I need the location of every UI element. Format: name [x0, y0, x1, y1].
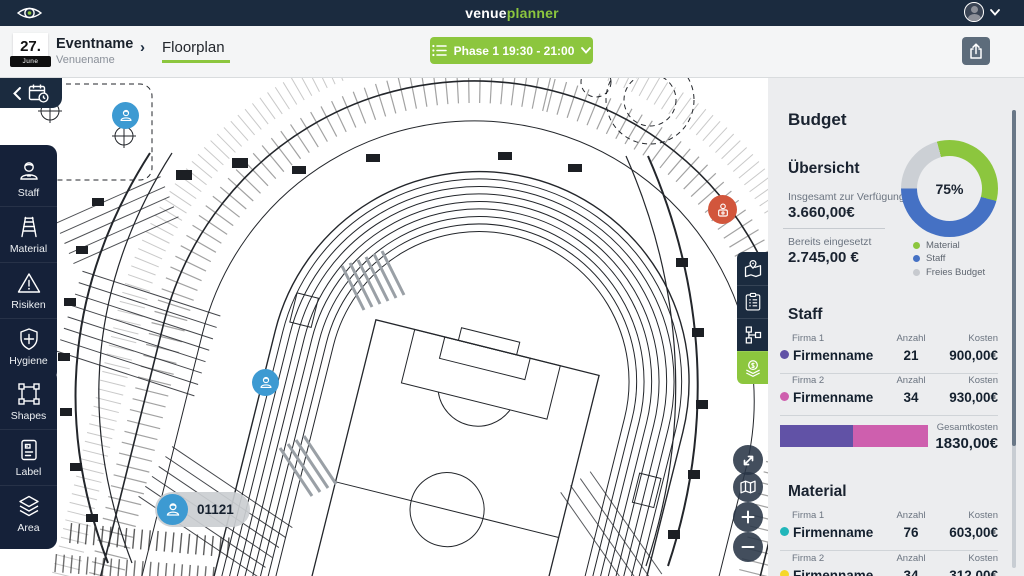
alert-person-marker[interactable] — [708, 195, 737, 224]
staff-tag-avatar — [157, 494, 188, 525]
user-menu[interactable] — [964, 2, 1000, 22]
fullscreen-button[interactable] — [733, 445, 763, 475]
staff-person-icon — [164, 501, 182, 518]
sidebar-item-label: Hygiene — [9, 355, 48, 367]
staff-cost-stacked-bar — [780, 425, 928, 447]
bar-segment — [853, 425, 928, 447]
sidebar-item-label: Material — [10, 243, 47, 255]
legend-item: Staff — [913, 254, 985, 264]
staff-row: Firma 1Firmenname Anzahl21 Kosten900,00€ — [780, 333, 998, 374]
sidebar-item-area[interactable]: Area — [0, 485, 57, 541]
legend-dot — [913, 269, 920, 276]
staff-row: Firma 2Firmenname Anzahl34 Kosten930,00€ — [780, 375, 998, 416]
list-icon — [432, 44, 447, 57]
minus-icon — [741, 540, 755, 554]
total-available-label: Insgesamt zur Verfügung — [788, 191, 905, 203]
calendar-clock-icon — [28, 83, 50, 104]
folded-map-icon — [740, 480, 756, 494]
breadcrumb-chevron-icon: › — [140, 39, 145, 56]
sidebar-item-label: Area — [17, 522, 39, 534]
venue-name: Venuename — [56, 54, 115, 66]
legend-item: Freies Budget — [913, 267, 985, 277]
phase-selector-button[interactable]: Phase 1 19:30 - 21:00 — [430, 37, 593, 64]
used-budget-label: Bereits eingesetzt — [788, 236, 871, 248]
legend-dot — [913, 242, 920, 249]
legend-item: Material — [913, 240, 985, 250]
staff-icon — [16, 159, 42, 183]
staff-person-icon — [258, 375, 274, 390]
total-cost-label: Gesamtkosten — [937, 422, 998, 433]
sidebar-item-label: Label — [16, 466, 42, 478]
zoom-out-button[interactable] — [733, 532, 763, 562]
money-layers-icon — [743, 358, 763, 378]
total-available-value: 3.660,00€ — [788, 204, 855, 221]
divider — [783, 228, 885, 229]
staff-marker[interactable] — [252, 369, 279, 396]
legend-dot — [913, 255, 920, 262]
page-header: 27. June Eventname Venuename › Floorplan… — [0, 26, 1024, 78]
budget-donut-chart: 75% — [901, 140, 998, 237]
sidebar-item-label: Staff — [18, 187, 39, 199]
app-logo-eye-icon[interactable] — [16, 3, 43, 23]
overview-heading: Übersicht — [788, 160, 860, 178]
workflow-button[interactable] — [737, 318, 768, 351]
staff-person-icon — [118, 108, 134, 123]
company-color-dot — [780, 527, 789, 536]
checklist-button[interactable] — [737, 285, 768, 318]
top-navbar: venueplanner — [0, 0, 1024, 26]
material-row: Firma 1Firmenname Anzahl76 Kosten603,00€ — [780, 510, 998, 551]
plus-icon — [741, 510, 755, 524]
sidebar-item-label: Risiken — [11, 299, 45, 311]
company-color-dot — [780, 570, 789, 576]
shield-cross-icon — [16, 327, 42, 351]
sidebar-item-label: Shapes — [11, 410, 47, 422]
event-name: Eventname — [56, 36, 133, 52]
tab-floorplan[interactable]: Floorplan — [162, 39, 225, 56]
map-overview-button[interactable] — [733, 472, 763, 502]
ladder-icon — [16, 215, 42, 239]
material-row: Firma 2Firmenname Anzahl34 Kosten312,00€ — [780, 553, 998, 576]
sidebar-item-material[interactable]: Material — [0, 206, 57, 262]
budget-button[interactable] — [737, 351, 768, 384]
brand-title: venueplanner — [465, 5, 558, 21]
person-badge-icon — [715, 202, 731, 218]
zoom-in-button[interactable] — [733, 502, 763, 532]
user-avatar[interactable] — [964, 2, 984, 22]
sidebar-tools-primary: Staff Material Risiken Hygiene — [0, 145, 57, 382]
map-pin-icon — [743, 259, 763, 279]
chevron-left-icon — [13, 87, 21, 100]
sidebar-tools-secondary: Shapes Label Area — [0, 368, 57, 549]
used-budget-value: 2.745,00 € — [788, 249, 859, 266]
sidebar-item-hygiene[interactable]: Hygiene — [0, 318, 57, 374]
total-cost-value: 1830,00€ — [935, 435, 998, 452]
staff-tag-number: 01121 — [197, 502, 234, 517]
sidebar-item-staff[interactable]: Staff — [0, 151, 57, 206]
map-mode-toolbar — [737, 252, 768, 384]
tab-active-underline — [162, 60, 230, 63]
material-section-heading: Material — [788, 483, 847, 501]
panel-scrollbar[interactable] — [1012, 110, 1016, 568]
panel-title: Budget — [788, 110, 847, 130]
warning-triangle-icon — [16, 271, 42, 295]
budget-panel: Budget Übersicht Insgesamt zur Verfügung… — [768, 78, 1024, 576]
bar-segment — [780, 425, 853, 447]
phase-label: Phase 1 19:30 - 21:00 — [454, 44, 575, 58]
sidebar-item-label-tool[interactable]: Label — [0, 429, 57, 485]
label-document-icon — [16, 438, 42, 462]
chevron-down-icon — [581, 47, 591, 54]
share-icon — [968, 43, 984, 60]
panel-scrollbar-thumb[interactable] — [1012, 110, 1016, 446]
staff-tag-pill[interactable]: 01121 — [155, 492, 250, 527]
clipboard-checklist-icon — [744, 292, 762, 312]
company-color-dot — [780, 392, 789, 401]
layers-icon — [16, 494, 42, 518]
map-viewport[interactable]: Staff Material Risiken Hygiene — [0, 78, 768, 576]
sidebar-item-shapes[interactable]: Shapes — [0, 374, 57, 429]
share-button[interactable] — [962, 37, 990, 65]
map-locator-button[interactable] — [737, 252, 768, 285]
event-date-month: June — [10, 56, 51, 67]
staff-marker[interactable] — [112, 102, 139, 129]
stadium-floorplan-drawing[interactable] — [0, 78, 768, 576]
staff-section-heading: Staff — [788, 306, 822, 324]
company-color-dot — [780, 350, 789, 359]
budget-donut-percentage: 75% — [917, 156, 982, 221]
expand-arrows-icon — [741, 453, 756, 468]
shapes-icon — [16, 382, 42, 406]
donut-legend: Material Staff Freies Budget — [913, 240, 985, 281]
nodes-flow-icon — [743, 325, 763, 345]
chevron-down-icon — [990, 9, 1000, 16]
back-to-calendar-button[interactable] — [0, 78, 62, 108]
sidebar-item-risiken[interactable]: Risiken — [0, 262, 57, 318]
